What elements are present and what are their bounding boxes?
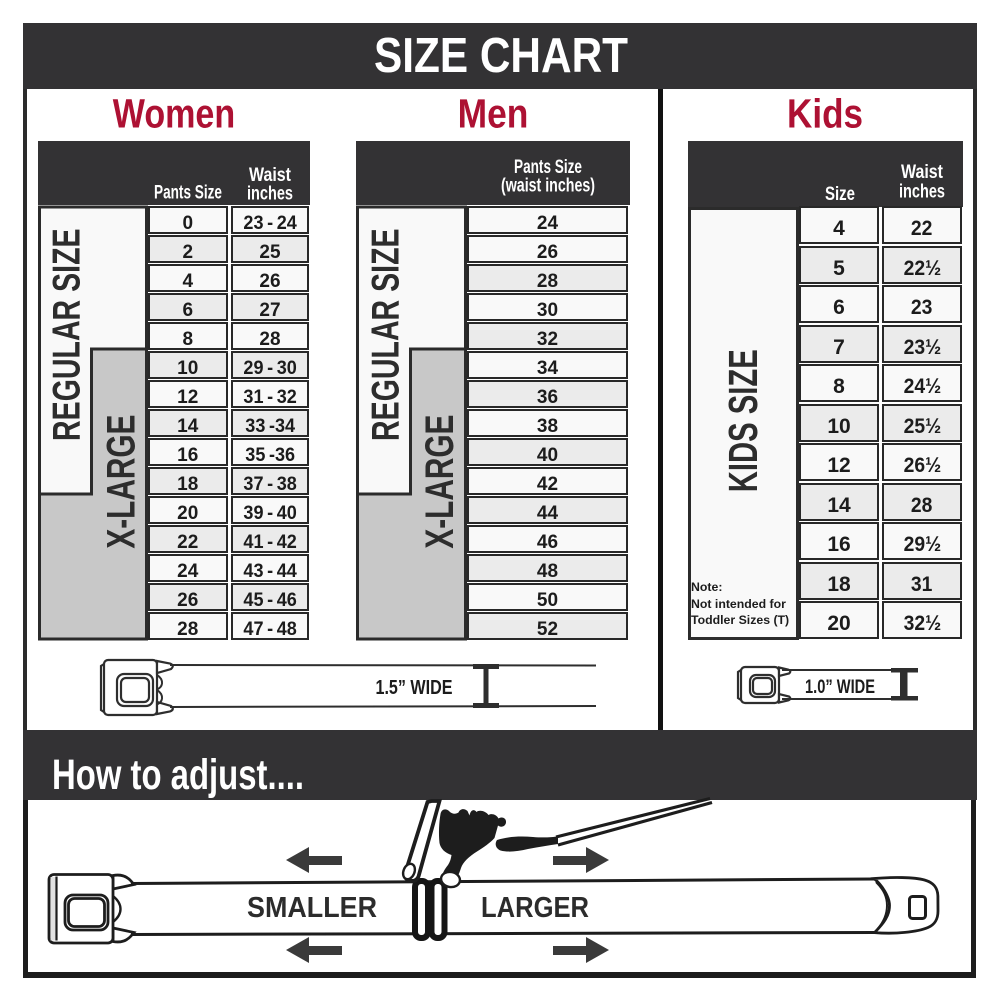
- svg-text:SMALLER: SMALLER: [247, 892, 377, 924]
- svg-text:LARGER: LARGER: [481, 892, 589, 924]
- svg-text:1.0” WIDE: 1.0” WIDE: [805, 676, 875, 698]
- svg-text:1.5” WIDE: 1.5” WIDE: [376, 676, 453, 699]
